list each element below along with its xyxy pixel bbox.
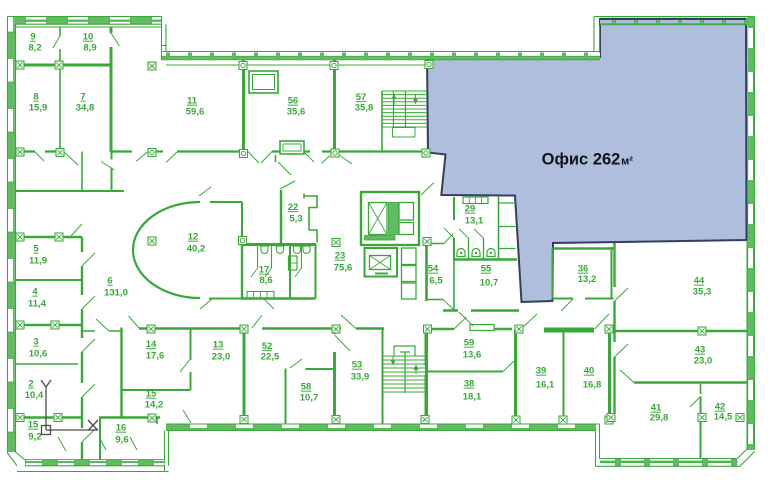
svg-text:40: 40 <box>584 366 595 377</box>
svg-text:22,5: 22,5 <box>261 352 280 363</box>
svg-text:8,6: 8,6 <box>259 275 272 286</box>
svg-text:43: 43 <box>695 345 706 356</box>
svg-text:11,9: 11,9 <box>29 256 47 267</box>
svg-text:35,6: 35,6 <box>287 107 306 118</box>
svg-text:14,5: 14,5 <box>714 412 733 423</box>
svg-text:15,9: 15,9 <box>29 103 48 114</box>
svg-text:39: 39 <box>536 366 547 377</box>
svg-text:52: 52 <box>262 341 273 352</box>
svg-text:29: 29 <box>465 204 476 215</box>
svg-text:15: 15 <box>146 389 157 400</box>
svg-text:8: 8 <box>33 92 38 103</box>
svg-text:23,0: 23,0 <box>694 356 713 367</box>
svg-text:14: 14 <box>146 339 157 350</box>
svg-text:3: 3 <box>33 337 38 348</box>
svg-text:4: 4 <box>32 287 38 298</box>
svg-text:35,3: 35,3 <box>693 287 712 298</box>
svg-text:33,9: 33,9 <box>351 372 370 383</box>
svg-text:13: 13 <box>213 340 224 351</box>
svg-text:55: 55 <box>481 264 492 275</box>
svg-text:54: 54 <box>428 264 439 275</box>
svg-text:9,6: 9,6 <box>115 435 128 446</box>
svg-text:8,9: 8,9 <box>83 43 96 54</box>
svg-text:17: 17 <box>259 265 270 276</box>
svg-text:35,8: 35,8 <box>355 103 374 114</box>
svg-text:53: 53 <box>352 360 363 371</box>
svg-text:11: 11 <box>187 96 198 107</box>
svg-text:29,8: 29,8 <box>650 413 669 424</box>
svg-text:56: 56 <box>288 96 299 107</box>
svg-text:15: 15 <box>28 420 39 431</box>
svg-text:6,5: 6,5 <box>429 276 443 287</box>
svg-text:16,1: 16,1 <box>536 380 555 391</box>
svg-text:34,8: 34,8 <box>76 103 95 114</box>
svg-text:131,0: 131,0 <box>104 288 128 299</box>
svg-text:11,4: 11,4 <box>28 299 47 310</box>
svg-text:9,2: 9,2 <box>28 432 41 443</box>
svg-text:10,7: 10,7 <box>480 278 499 289</box>
svg-text:40,2: 40,2 <box>187 244 206 255</box>
svg-text:57: 57 <box>356 92 367 103</box>
svg-text:18,1: 18,1 <box>463 392 482 403</box>
svg-text:5: 5 <box>33 244 39 255</box>
svg-text:23: 23 <box>335 251 346 262</box>
svg-text:58: 58 <box>301 382 312 393</box>
svg-text:м²: м² <box>621 156 633 168</box>
svg-text:7: 7 <box>80 92 85 103</box>
svg-text:12: 12 <box>188 232 199 243</box>
svg-text:59,6: 59,6 <box>186 107 205 118</box>
svg-text:10,6: 10,6 <box>29 349 48 360</box>
svg-text:8,2: 8,2 <box>28 43 41 54</box>
svg-text:13,1: 13,1 <box>465 216 484 227</box>
svg-text:Офис 262: Офис 262 <box>542 151 621 169</box>
svg-text:22: 22 <box>288 202 299 213</box>
svg-text:59: 59 <box>464 338 475 349</box>
svg-text:6: 6 <box>107 276 112 287</box>
svg-text:10: 10 <box>83 32 94 43</box>
svg-text:38: 38 <box>464 379 475 390</box>
svg-text:17,6: 17,6 <box>146 351 165 362</box>
svg-text:16: 16 <box>116 423 127 434</box>
svg-text:16,8: 16,8 <box>583 380 602 391</box>
svg-text:23,0: 23,0 <box>212 352 231 363</box>
svg-text:13,6: 13,6 <box>463 350 482 361</box>
svg-text:5,3: 5,3 <box>289 214 302 225</box>
svg-text:10,4: 10,4 <box>25 390 44 401</box>
svg-text:14,2: 14,2 <box>145 400 164 411</box>
svg-text:13,2: 13,2 <box>578 274 597 285</box>
svg-text:75,6: 75,6 <box>334 263 353 274</box>
svg-text:9: 9 <box>30 32 35 43</box>
svg-text:44: 44 <box>694 276 705 287</box>
svg-text:36: 36 <box>578 264 589 275</box>
svg-text:10,7: 10,7 <box>300 393 319 404</box>
svg-text:2: 2 <box>28 379 33 390</box>
